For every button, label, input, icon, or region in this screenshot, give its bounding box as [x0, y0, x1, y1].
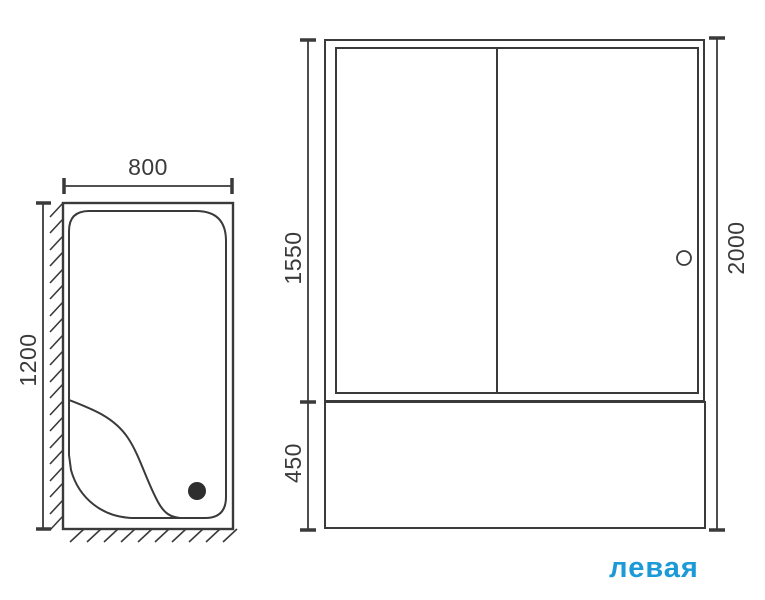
orientation-label: левая [579, 552, 729, 584]
bathtub-top-view [36, 178, 237, 542]
dim-label-screen-height-1550: 1550 [279, 208, 307, 308]
screen-front-view [300, 38, 725, 530]
wall-hatching-left [50, 203, 63, 530]
dim-label-panel-height-450: 450 [279, 413, 307, 513]
dim-label-depth-1200: 1200 [14, 310, 42, 410]
drain-hole [188, 482, 206, 500]
screen-outer-frame [325, 40, 704, 401]
wall-hatching-bottom [70, 529, 237, 542]
dim-label-total-height-2000: 2000 [722, 198, 750, 298]
technical-drawing-canvas: 800 1200 1550 450 2000 левая [0, 0, 765, 600]
bath-front-panel [325, 402, 705, 528]
dim-label-width-800: 800 [98, 153, 198, 181]
door-handle [677, 251, 691, 265]
drawing-svg [0, 0, 765, 600]
